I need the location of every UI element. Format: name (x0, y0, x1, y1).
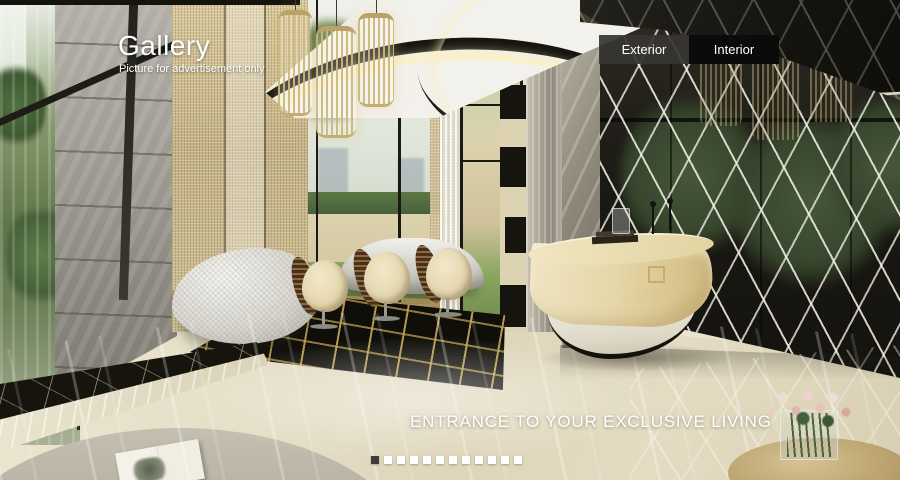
pendant-cord (336, 0, 337, 26)
view-tabs: Exterior Interior (599, 35, 779, 64)
egg-chair (422, 246, 474, 308)
page-subtitle: Picture for advertisement only (119, 63, 265, 75)
cage-pendant-light (358, 13, 394, 107)
hedge (306, 192, 442, 216)
chair-shell (302, 260, 348, 312)
display-box (505, 217, 526, 253)
carousel-dot[interactable] (514, 456, 522, 464)
display-box (500, 85, 526, 119)
desk-logo (648, 266, 665, 283)
carousel-dot[interactable] (436, 456, 444, 464)
chair-shell (364, 252, 410, 304)
carousel-dot[interactable] (462, 456, 470, 464)
slide-caption: ENTRANCE TO YOUR EXCLUSIVE LIVING (410, 412, 772, 432)
carousel-dot[interactable] (410, 456, 418, 464)
cage-pendant-light (316, 26, 356, 138)
carousel-dot[interactable] (371, 456, 379, 464)
pendant-cord (376, 0, 377, 14)
carousel-dot[interactable] (384, 456, 392, 464)
tab-interior[interactable]: Interior (689, 35, 779, 64)
display-box (500, 147, 526, 187)
egg-chair (360, 250, 412, 312)
tulip-bouquet (758, 382, 858, 434)
carousel-dot[interactable] (501, 456, 509, 464)
candlestick (669, 203, 671, 231)
chair-shell (426, 248, 472, 300)
egg-chair (298, 258, 350, 320)
cage-pendant-light (278, 10, 312, 116)
cage-light-reflection (752, 52, 800, 140)
carousel-dot[interactable] (475, 456, 483, 464)
display-pillar (500, 85, 526, 332)
carousel-dot[interactable] (423, 456, 431, 464)
building-silhouette (318, 148, 348, 196)
page-title: Gallery (118, 30, 210, 62)
carousel-dot[interactable] (397, 456, 405, 464)
candlestick (652, 206, 654, 234)
desk-vase (612, 208, 630, 234)
ceiling-edge (0, 0, 300, 5)
carousel-dot[interactable] (449, 456, 457, 464)
tab-exterior[interactable]: Exterior (599, 35, 689, 64)
gallery-page: Gallery Picture for advertisement only E… (0, 0, 900, 480)
building-silhouette (398, 158, 424, 196)
carousel-dots (371, 456, 522, 464)
carousel-dot[interactable] (488, 456, 496, 464)
